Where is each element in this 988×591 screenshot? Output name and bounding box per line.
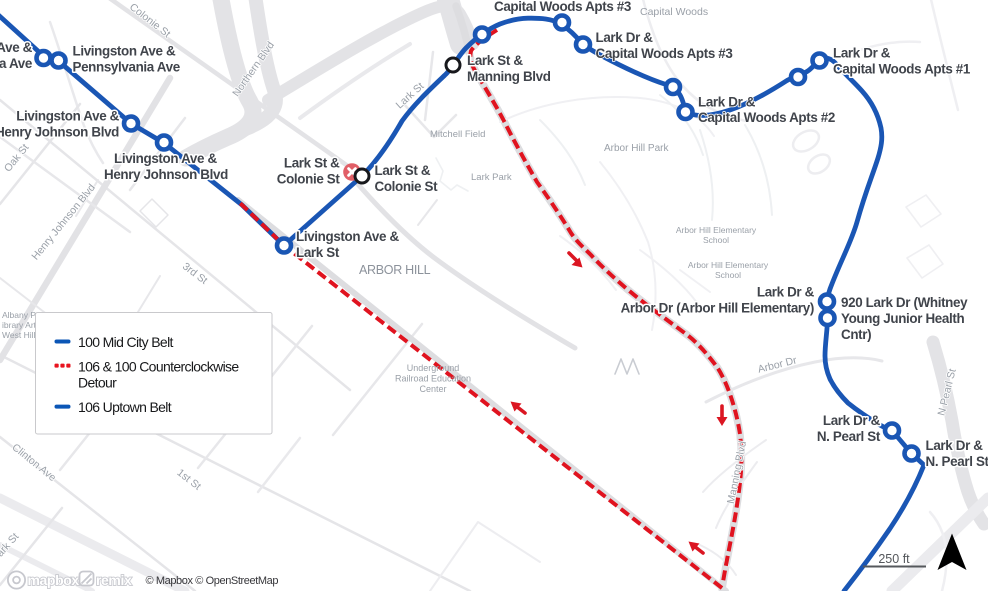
svg-text:Lark St: Lark St (296, 245, 340, 260)
svg-text:Pennsylvania Ave: Pennsylvania Ave (73, 60, 180, 75)
svg-text:Lark Dr &: Lark Dr & (698, 95, 756, 110)
svg-text:Lark St &: Lark St & (284, 156, 340, 171)
svg-text:Mitchell Field: Mitchell Field (430, 129, 485, 140)
svg-text:Lark Dr &: Lark Dr & (596, 30, 654, 45)
svg-text:Colonie St: Colonie St (127, 1, 173, 40)
svg-text:Arbor Hill Elementary: Arbor Hill Elementary (688, 260, 769, 270)
svg-text:Lark Dr &: Lark Dr & (926, 438, 984, 453)
svg-text:School: School (703, 235, 729, 245)
svg-text:Henry Johnson Blvd: Henry Johnson Blvd (104, 167, 228, 182)
svg-text:Young Junior Health: Young Junior Health (841, 311, 964, 326)
svg-text:Arbor Dr (Arbor Hill Elementar: Arbor Dr (Arbor Hill Elementary) (621, 301, 814, 316)
svg-text:Lark Park: Lark Park (471, 172, 512, 183)
svg-text:Capital Woods Apts #3: Capital Woods Apts #3 (596, 46, 733, 61)
svg-text:100 Mid City Belt: 100 Mid City Belt (78, 334, 174, 350)
svg-text:106 & 100 Counterclockwise: 106 & 100 Counterclockwise (78, 359, 239, 375)
svg-text:Arbor Hill Elementary: Arbor Hill Elementary (676, 225, 757, 235)
svg-text:ARBOR HILL: ARBOR HILL (359, 263, 431, 277)
svg-text:1st St: 1st St (175, 467, 204, 493)
svg-text:Lark St &: Lark St & (375, 163, 431, 178)
svg-text:Clinton Ave: Clinton Ave (10, 441, 59, 484)
svg-text:School: School (715, 270, 741, 280)
svg-text:© Mapbox © OpenStreetMap: © Mapbox © OpenStreetMap (146, 575, 279, 587)
svg-text:remix: remix (96, 572, 132, 588)
svg-text:Capital Woods Apts #1: Capital Woods Apts #1 (833, 62, 971, 77)
svg-text:250 ft: 250 ft (878, 552, 910, 566)
svg-text:N. Pearl St: N. Pearl St (817, 429, 881, 444)
svg-text:Colonie St: Colonie St (277, 172, 341, 187)
svg-text:Capital Woods Apts #3: Capital Woods Apts #3 (494, 0, 631, 14)
svg-text:Cntr): Cntr) (841, 327, 871, 342)
svg-text:Livingston Ave &: Livingston Ave & (73, 44, 176, 59)
svg-text:Colonie St: Colonie St (375, 179, 439, 194)
svg-text:Henry Johnson Blvd: Henry Johnson Blvd (0, 125, 119, 140)
svg-text:mapbox: mapbox (28, 572, 80, 588)
svg-text:Lark St &: Lark St & (467, 53, 523, 68)
svg-text:Ave &: Ave & (0, 40, 33, 55)
svg-text:Detour: Detour (78, 375, 117, 391)
svg-text:Capital Woods: Capital Woods (640, 6, 708, 18)
svg-text:3rd St: 3rd St (180, 260, 210, 286)
svg-text:106 Uptown Belt: 106 Uptown Belt (78, 399, 172, 415)
svg-text:Capital Woods Apts #2: Capital Woods Apts #2 (698, 110, 835, 125)
svg-text:Railroad Education: Railroad Education (395, 374, 471, 384)
svg-text:Lark Dr &: Lark Dr & (757, 285, 815, 300)
svg-text:Lark Dr &: Lark Dr & (823, 413, 881, 428)
svg-text:920 Lark Dr (Whitney: 920 Lark Dr (Whitney (841, 295, 968, 310)
svg-text:Livingston Ave &: Livingston Ave & (296, 229, 399, 244)
svg-text:Arbor Hill Park: Arbor Hill Park (604, 143, 669, 154)
svg-text:Underground: Underground (407, 363, 460, 373)
svg-text:Albany P: Albany P (2, 310, 36, 320)
svg-text:Center: Center (419, 384, 446, 394)
svg-text:Lark Dr &: Lark Dr & (833, 46, 891, 61)
svg-text:N. Pearl St: N. Pearl St (926, 454, 988, 469)
svg-text:Livingston Ave &: Livingston Ave & (16, 109, 119, 124)
svg-text:Manning Blvd: Manning Blvd (725, 440, 749, 505)
svg-text:Manning Blvd: Manning Blvd (467, 69, 551, 84)
svg-text:Livingston Ave &: Livingston Ave & (114, 151, 217, 166)
svg-text:ibrary Art: ibrary Art (2, 320, 37, 330)
svg-text:a Ave: a Ave (0, 56, 32, 71)
